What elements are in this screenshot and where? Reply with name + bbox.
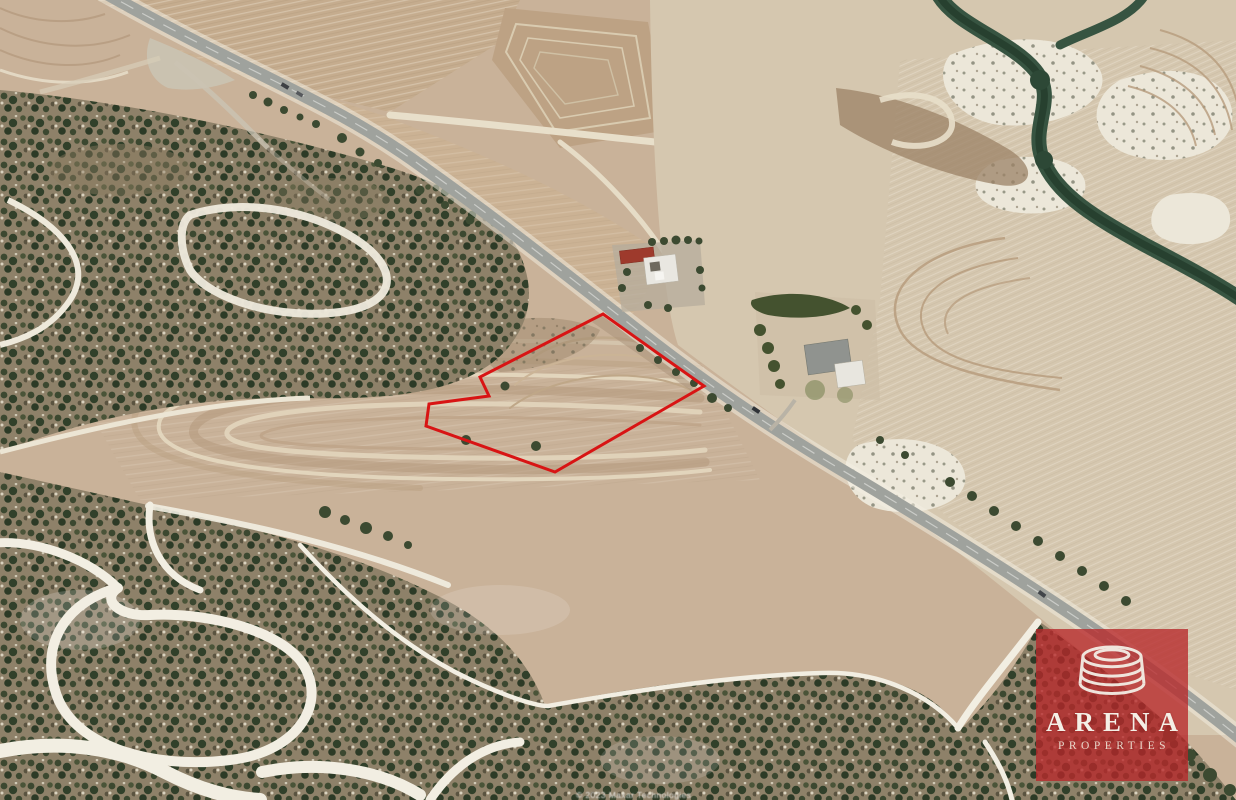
watermark-brand-text: ARENA: [1046, 707, 1187, 738]
imagery-attribution: © 2023 Maxar Technologies: [576, 790, 796, 800]
watermark-tagline-text: PROPERTIES: [1058, 740, 1170, 752]
aerial-property-photo: ARENA PROPERTIES © 2023 Maxar Technologi…: [0, 0, 1236, 800]
arena-rings-icon: [1064, 639, 1160, 701]
watermark-logo: ARENA PROPERTIES: [1036, 629, 1188, 781]
